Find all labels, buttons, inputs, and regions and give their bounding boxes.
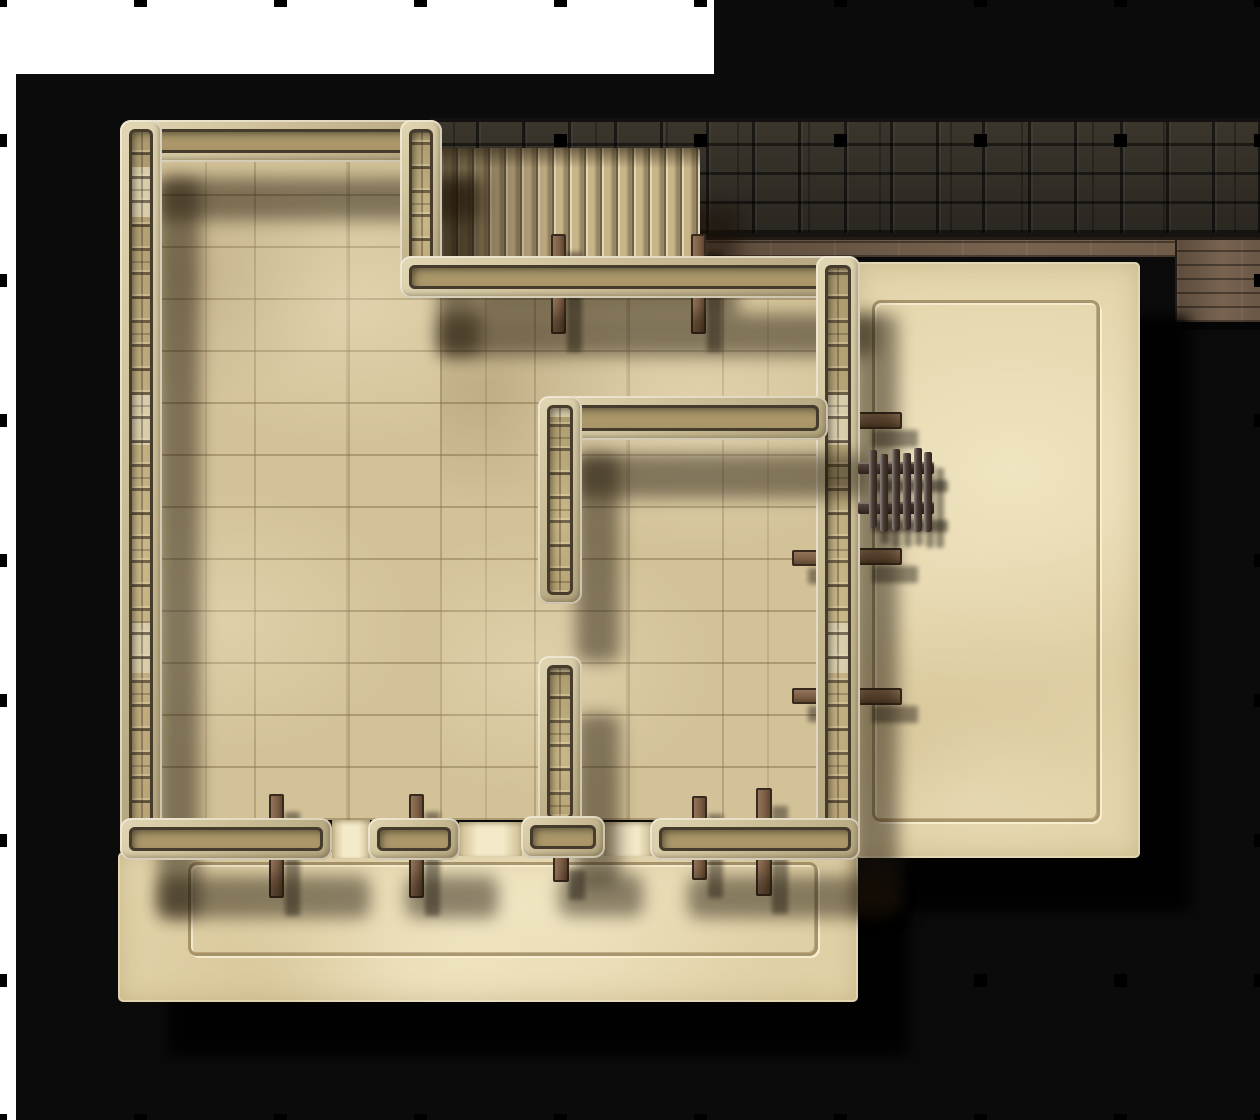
grid-marker	[834, 134, 847, 147]
grid-marker	[0, 694, 7, 707]
staircase	[442, 148, 700, 258]
fence-picket	[880, 454, 888, 532]
grid-marker	[0, 414, 7, 427]
battle-map	[0, 0, 1260, 1120]
wall-west	[120, 120, 162, 860]
fence-picket	[903, 453, 911, 530]
grid-marker	[1114, 0, 1127, 7]
backdrop-top-right	[714, 0, 1260, 74]
grid-marker	[554, 1114, 567, 1120]
beam-east-outer-1	[856, 412, 902, 429]
grid-marker	[1114, 134, 1127, 147]
grid-marker	[974, 134, 987, 147]
grid-marker	[1254, 414, 1260, 427]
grid-marker	[274, 0, 287, 7]
grid-marker	[694, 0, 707, 7]
door-threshold-east	[604, 822, 652, 856]
grid-marker	[1254, 974, 1260, 987]
grid-marker	[1114, 1114, 1127, 1120]
fence-picket	[892, 449, 900, 531]
main-hall-floor-east	[440, 298, 820, 820]
fence-picket	[869, 450, 877, 528]
wall-east	[816, 256, 860, 860]
grid-marker	[554, 134, 567, 147]
grid-marker	[274, 1114, 287, 1120]
grid-marker	[834, 0, 847, 7]
beam-east-outer-2	[856, 548, 902, 565]
wood-walkway-block	[1175, 237, 1260, 322]
grid-marker	[694, 134, 707, 147]
grid-marker	[414, 1114, 427, 1120]
wall-north	[120, 120, 442, 162]
courtyard-groove-border	[872, 300, 1100, 822]
inner-wall-west-lower	[538, 656, 582, 828]
grid-marker	[974, 974, 987, 987]
grid-marker	[0, 274, 7, 287]
grid-marker	[0, 974, 7, 987]
grid-marker	[0, 1114, 7, 1120]
beam-east-outer-3	[856, 688, 902, 705]
grid-marker	[134, 1114, 147, 1120]
wall-south-2	[368, 818, 460, 860]
grid-marker	[1254, 694, 1260, 707]
grid-marker	[834, 1114, 847, 1120]
inner-wall-west-upper	[538, 396, 582, 604]
door-threshold-middle	[459, 822, 522, 856]
wall-south-3	[650, 818, 860, 860]
wall-south-1	[120, 818, 332, 860]
grid-marker	[974, 0, 987, 7]
grid-marker	[0, 134, 7, 147]
grid-marker	[1114, 974, 1127, 987]
inner-wall-south-base	[521, 816, 605, 858]
fence-picket	[914, 448, 922, 532]
grid-marker	[0, 834, 7, 847]
grid-marker	[0, 554, 7, 567]
grid-marker	[1254, 274, 1260, 287]
grid-marker	[974, 1114, 987, 1120]
grid-marker	[1254, 554, 1260, 567]
grid-marker	[1254, 134, 1260, 147]
grid-marker	[134, 0, 147, 7]
grid-marker	[694, 1114, 707, 1120]
grid-marker	[414, 0, 427, 7]
main-hall-floor-west	[160, 160, 440, 820]
wall-below-stairs	[400, 256, 838, 298]
grid-marker	[1254, 1114, 1260, 1120]
fence-picket	[924, 452, 932, 532]
grid-marker	[554, 0, 567, 7]
door-threshold-west	[332, 820, 370, 858]
grid-marker	[0, 0, 7, 7]
grid-marker	[1254, 0, 1260, 7]
grid-marker	[1254, 834, 1260, 847]
